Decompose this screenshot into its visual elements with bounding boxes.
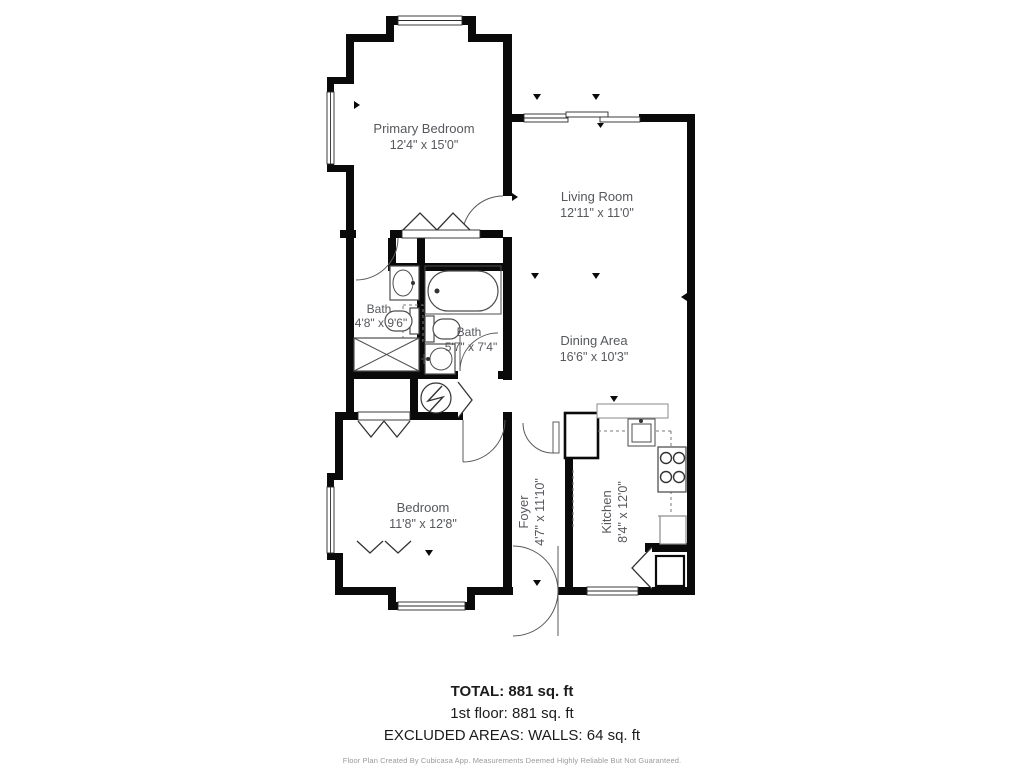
- dims-bath2: 5'7" x 7'4": [445, 340, 497, 354]
- door-arc-bedroom: [463, 420, 505, 462]
- floor-area-text: 1st floor: 881 sq. ft: [0, 703, 1024, 725]
- dims-bedroom: 11'8" x 12'8": [389, 517, 457, 531]
- dims-dining-area: 16'6" x 10'3": [560, 350, 629, 364]
- label-kitchen: Kitchen: [599, 490, 614, 533]
- dims-bath1: 4'8" x 9'6": [355, 316, 407, 330]
- door-arc-foyer-top: [523, 423, 553, 453]
- label-primary-bedroom: Primary Bedroom: [373, 121, 474, 136]
- window-primary-left-icon: [327, 92, 334, 164]
- label-bedroom: Bedroom: [397, 500, 450, 515]
- floor-plan-page: Primary Bedroom 12'4" x 15'0" Living Roo…: [0, 0, 1024, 768]
- total-area-text: TOTAL: 881 sq. ft: [0, 681, 1024, 703]
- dims-foyer: 4'7" x 11'10": [533, 478, 547, 546]
- window-living-top-icon: [524, 114, 568, 122]
- bifold-bedroom-closet-icon: [358, 421, 410, 437]
- bath1-shower-icon: [354, 338, 419, 371]
- label-bath2: Bath: [457, 325, 482, 339]
- label-living-room: Living Room: [561, 189, 633, 204]
- floor-plan-drawing: Primary Bedroom 12'4" x 15'0" Living Roo…: [0, 0, 1024, 768]
- kitchen-counter-icon: [597, 404, 668, 418]
- dims-primary-bedroom: 12'4" x 15'0": [390, 138, 459, 152]
- bifold-water-heater-icon: [458, 382, 472, 418]
- label-bath1: Bath: [367, 302, 392, 316]
- label-dining-area: Dining Area: [560, 333, 628, 348]
- bifold-kitchen-nook-icon: [632, 547, 652, 589]
- bath2-toilet-icon: [425, 316, 460, 342]
- dishwasher-icon: [660, 516, 686, 544]
- nook-appliance-icon: [656, 556, 684, 586]
- dims-kitchen: 8'4" x 12'0": [616, 481, 630, 543]
- label-foyer: Foyer: [516, 495, 531, 529]
- bifold-primary-closet-icon: [403, 213, 470, 230]
- entry-door-icon: [513, 546, 558, 636]
- excluded-area-text: EXCLUDED AREAS: WALLS: 64 sq. ft: [0, 725, 1024, 747]
- disclaimer-text: Floor Plan Created By Cubicasa App. Meas…: [0, 756, 1024, 765]
- window-kitchen-bottom-icon: [587, 587, 638, 595]
- stove-icon: [658, 447, 686, 492]
- water-heater-icon: [421, 383, 451, 413]
- window-bedroom-left-icon: [327, 487, 334, 553]
- window-bedroom-bottom-icon: [398, 602, 465, 610]
- bifold-bedroom-lower-icon: [357, 541, 411, 553]
- bath1-sink-icon: [390, 266, 419, 300]
- dims-living-room: 12'11" x 11'0": [560, 206, 634, 220]
- area-summary: TOTAL: 881 sq. ft 1st floor: 881 sq. ft …: [0, 681, 1024, 765]
- sliding-door-icon: [566, 112, 640, 128]
- window-primary-top-icon: [398, 16, 462, 25]
- refrigerator-icon: [565, 413, 598, 458]
- kitchen-sink-icon: [628, 419, 655, 446]
- bath2-bathtub-icon: [425, 266, 501, 314]
